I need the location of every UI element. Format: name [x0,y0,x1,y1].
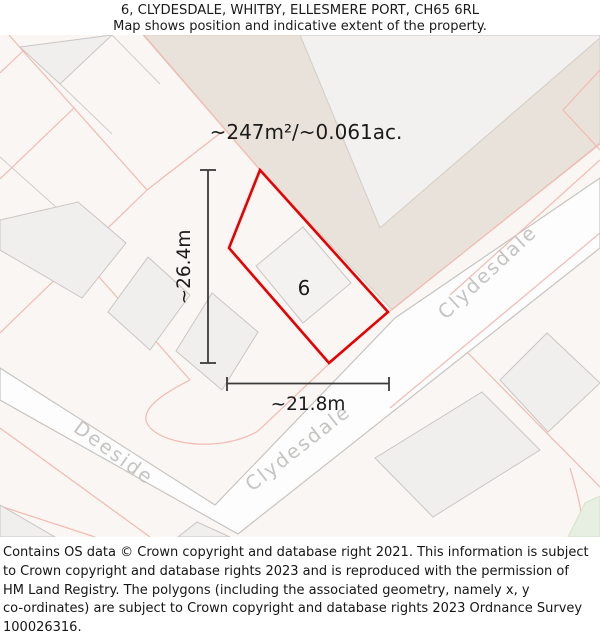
property-address-title: 6, CLYDESDALE, WHITBY, ELLESMERE PORT, C… [0,3,600,19]
plot-number: 6 [298,276,311,300]
footer-line: HM Land Registry. The polygons (includin… [3,582,596,601]
height-label: ~26.4m [174,230,195,305]
width-label: ~21.8m [271,394,346,415]
area-label: ~247m²/~0.061ac. [210,120,403,144]
map-description: Map shows position and indicative extent… [0,19,600,34]
property-map: Clydesdale Clydesdale Deeside ~247m²/~0.… [0,35,600,537]
map-header: 6, CLYDESDALE, WHITBY, ELLESMERE PORT, C… [0,0,600,35]
map-container: Clydesdale Clydesdale Deeside ~247m²/~0.… [0,35,600,537]
footer-line: 100026316. [3,619,596,638]
footer-line: to Crown copyright and database rights 2… [3,563,596,582]
footer-line: co-ordinates) are subject to Crown copyr… [3,600,596,619]
copyright-footer: Contains OS data © Crown copyright and d… [0,537,600,625]
footer-line: Contains OS data © Crown copyright and d… [3,544,596,563]
